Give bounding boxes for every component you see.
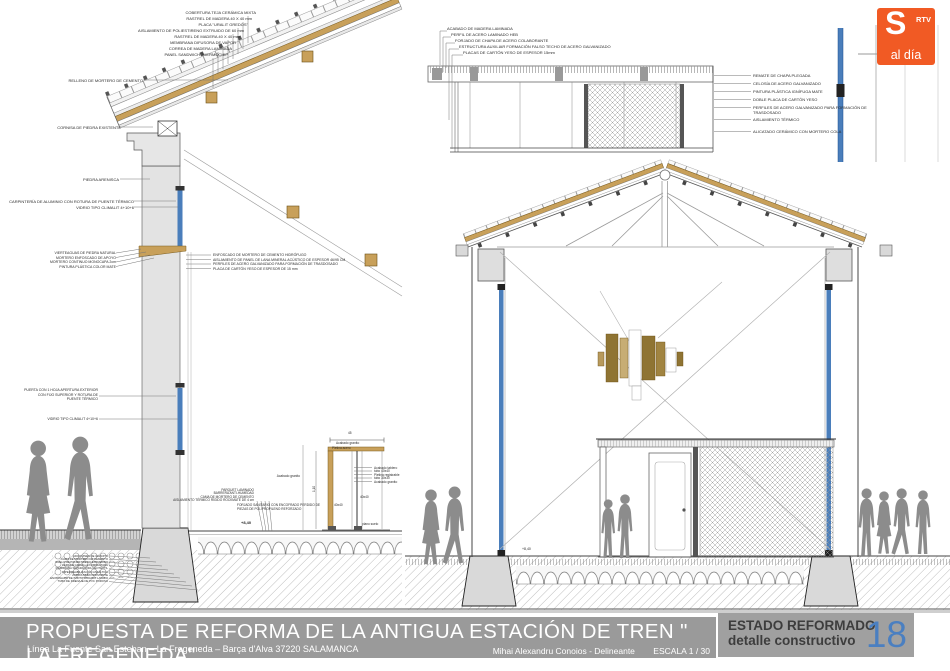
cornisa-label: CORNISA DE PIEDRA EXISTENTE	[57, 125, 121, 130]
bench-dim-height: 1,10	[312, 486, 316, 492]
glazing-left-wall	[499, 284, 504, 556]
door-handle	[682, 508, 685, 511]
carpinteria-label: CARPINTERÍA DE ALUMINIO CON ROTURA DE PU…	[9, 199, 134, 204]
blueprint-sheet: COBERTURA TEJA CERÁMICA MIXTA RASTREL DE…	[0, 0, 950, 671]
bench-dim-width: 45	[348, 431, 352, 435]
wall-cap-left	[478, 249, 504, 281]
silhouette-group-2	[877, 491, 892, 553]
stone-cornice	[127, 133, 180, 166]
state-line-1: ESTADO REFORMADO	[728, 619, 876, 634]
roof-label: AISLAMIENTO DE POLIESTIRENO EXTRUIDO DE …	[138, 28, 244, 33]
glulam-purlin-band	[115, 0, 399, 122]
foundation-footing-left	[133, 528, 198, 602]
trasdosado-label: PLACA DE CARTÓN YESO DE ESPESOR DE 15 mm	[213, 267, 298, 272]
floor-label: AISLAMIENTO TÉRMICO RÍGIDO ROCKMATE DE 4…	[173, 498, 254, 502]
silhouette-group-4	[916, 490, 931, 554]
silhouette-woman-left	[26, 441, 50, 542]
wall-finish-label: DOBLE PLACA DE CARTÓN YESO	[753, 97, 817, 102]
footing-left	[462, 556, 516, 606]
state-line-2: detalle constructivo	[728, 634, 876, 649]
silhouette-group-1	[859, 488, 875, 555]
footing-right	[804, 556, 858, 606]
bench-tube-label: 40x40	[360, 495, 369, 499]
interior-partition	[596, 439, 836, 557]
stone-wall	[142, 166, 180, 528]
steel-lattice	[588, 84, 680, 148]
piedra-label: PIEDRA ARENISCA	[83, 177, 119, 182]
roof-slope-right	[664, 160, 867, 250]
forjado-label: FORJADO SANITARIO CON ENCOFRADO PERDIDO …	[237, 503, 329, 511]
title-bar: PROPUESTA DE REFORMA DE LA ANTIGUA ESTAC…	[0, 617, 716, 658]
roof-label: PANEL SANDWICH THERMOCHIP	[165, 52, 229, 57]
rtv-logo: S RTV al día	[877, 8, 935, 65]
sanitary-slab-left	[198, 537, 402, 554]
level-mark-right: +8,40	[522, 547, 531, 552]
logo-rtv-text: RTV	[916, 15, 931, 24]
bench-top-label: Pletina acero	[332, 446, 351, 450]
sheet-subtitle: Línea La Fuente San Esteban – La Fregene…	[27, 644, 358, 654]
scale-label: ESCALA 1 / 30	[653, 646, 710, 656]
mesh-partition	[700, 447, 833, 557]
roof-label: RASTREL DE MADERA 40 X 40 mm	[186, 16, 252, 21]
logo-s-letter: S	[885, 5, 906, 42]
pendant-light-fixture	[598, 330, 683, 400]
roof-label: RASTREL DE MADERA 40 X 40 mm	[174, 34, 240, 39]
bench-floor-label: plano suelo	[362, 522, 378, 526]
door-glazing	[178, 388, 183, 450]
vidrio-label: VIDRIO TIPO CLIMALIT 4+10+6	[76, 205, 134, 210]
wall-finish-label: CELOSÍA DE ACERO GALVANIZADO	[753, 81, 821, 86]
wall-cap-right	[826, 249, 852, 281]
window-glazing-upper	[178, 190, 183, 246]
bench-detail-drawing	[303, 438, 390, 531]
wall-finish-label: AISLAMIENTO TÉRMICO	[753, 117, 799, 122]
delineator-credit: Mihai Alexandru Conoios - Delineante	[493, 646, 635, 656]
sanitary-slab-right	[516, 566, 804, 584]
vidrio2-label: VIDRIO TIPO CLIMALIT 4+10+6	[47, 417, 98, 422]
bench-left-label: Acabado granito	[277, 474, 300, 478]
bench-side-label: Acabado granito	[374, 480, 397, 484]
ceiling-detail-drawing	[428, 66, 713, 152]
silhouette-group-3	[891, 488, 909, 554]
left-wall-section-drawing	[0, 0, 402, 608]
level-mark-left: +8,40	[241, 520, 251, 525]
roof-label: MEMBRANA DIFUSORA DE VAPOR	[170, 40, 236, 45]
wall-finish-label: ALICATADO CERÁMICO CON MORTERO COLA	[753, 129, 841, 134]
silhouette-man-left	[64, 437, 93, 541]
ridge-finial	[660, 170, 670, 180]
ceiling-label: PERFIL DE ACERO LAMINADO HEB	[451, 32, 518, 37]
roof-label: PLACA "URALIT GREDOS"	[199, 22, 248, 27]
wall-finish-label: PINTURA PLÁSTICA IGNÍFUGA MATE	[753, 89, 823, 94]
roof-assembly	[106, 0, 402, 128]
relleno-label: RELLENO DE MORTERO DE CEMENTO	[68, 78, 143, 83]
silhouette-man-inside	[618, 494, 633, 558]
puerta-label: PUERTA CON 1 HOJA APERTURA EXTERIOR CON …	[23, 388, 98, 402]
roof-slope-left	[463, 160, 666, 250]
silhouette-man-outside	[443, 486, 464, 563]
ceiling-label: FORJADO DE CHAPA DE ACERO COLABORANTE	[455, 38, 548, 43]
ceiling-label: PLACAS DE CARTÓN YESO DE ESPESOR 15mm	[463, 50, 555, 55]
logo-tagline: al día	[877, 48, 935, 62]
ceiling-label: ESTRUCTURA AUXILIAR FORMACIÓN FALSO TECH…	[459, 44, 611, 49]
wall-finish-label: REMATE DE CHAPA PLEGADA	[753, 73, 810, 78]
roof-label: CORREA DE MADERA LAMINADA	[169, 46, 232, 51]
foundation-label: TUBO DE DRENAJE DE PVC POROSO	[57, 580, 108, 584]
building-cross-section-drawing	[405, 160, 950, 610]
sill-label: PINTURA PLÁSTICA COLOR MATE	[59, 265, 116, 270]
wall-finish-label: PERFILES DE ACERO GALVANIZADO PARA FORMA…	[753, 105, 873, 115]
roof-label: COBERTURA TEJA CERÁMICA MIXTA	[186, 10, 256, 15]
sheet-state-box: ESTADO REFORMADO detalle constructivo 18	[718, 613, 914, 657]
bench-tube-label: 40x40	[334, 503, 343, 507]
silhouette-woman-outside	[422, 489, 440, 564]
ceiling-label: ACABADO DE MADERA LAMINADA	[447, 26, 513, 31]
sheet-number: 18	[866, 614, 907, 656]
